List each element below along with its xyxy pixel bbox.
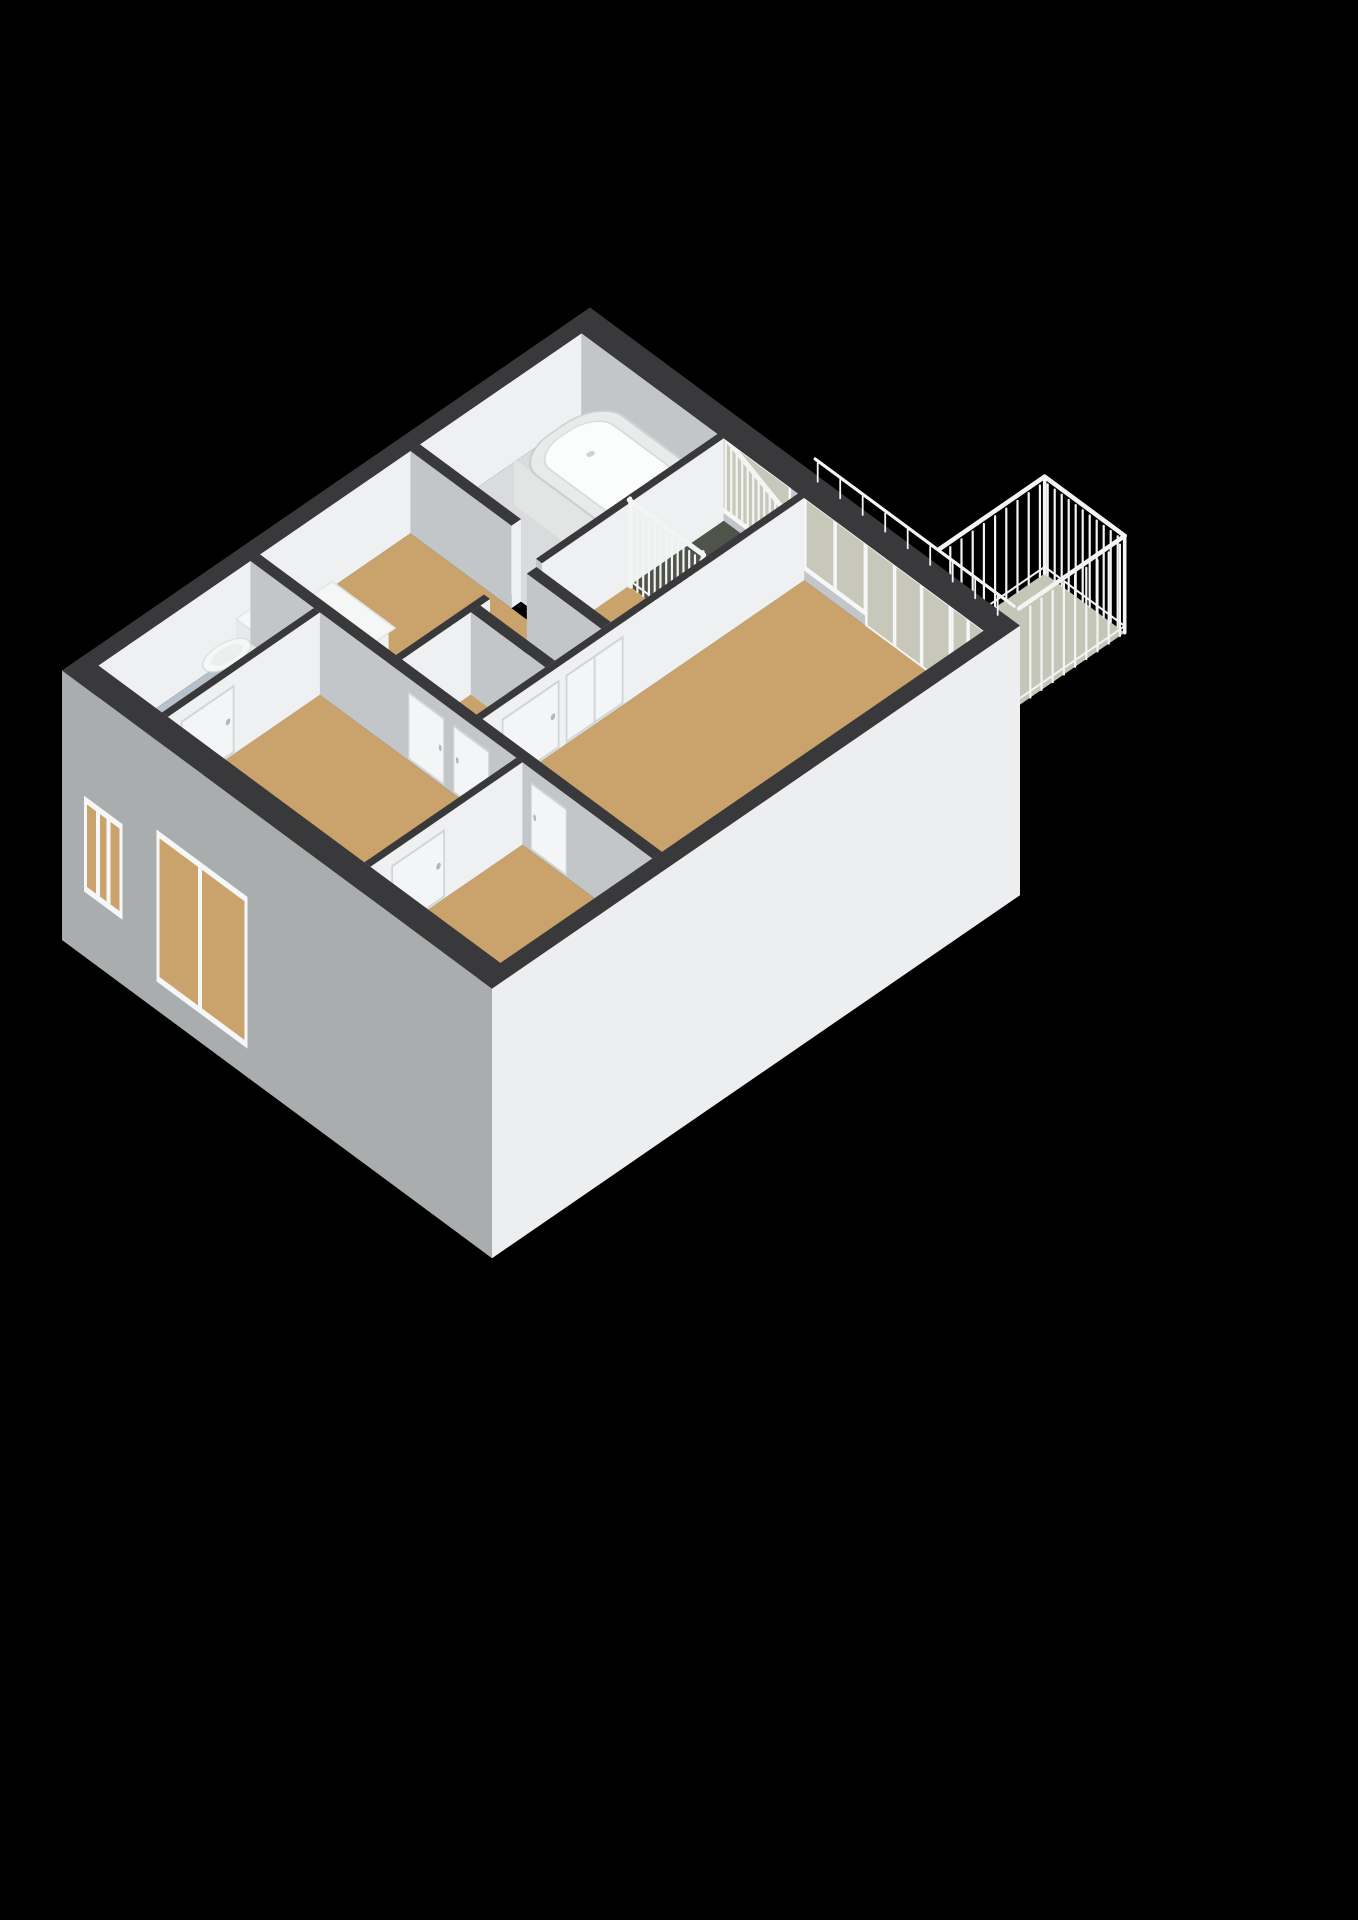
bath-study-cap	[511, 519, 521, 608]
floorplan-3d-render	[0, 0, 1358, 1920]
floorplan-canvas	[0, 0, 1358, 1920]
